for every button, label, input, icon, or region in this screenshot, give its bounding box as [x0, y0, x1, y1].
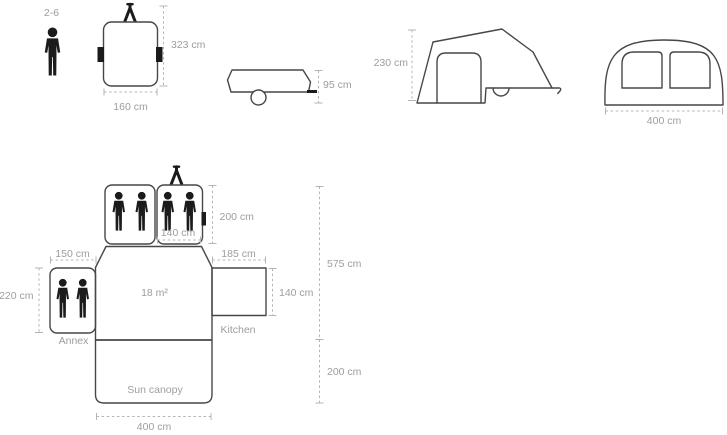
trailer-length-label: 323 cm	[171, 40, 205, 51]
annex-depth-label: 220 cm	[0, 291, 34, 302]
folded-body	[228, 70, 311, 92]
left-handle	[98, 47, 105, 62]
front-width-label: 400 cm	[647, 116, 681, 127]
person-icon	[135, 192, 148, 231]
person-icon	[161, 192, 174, 231]
person-icon	[45, 28, 61, 76]
dim-line-total-length	[316, 187, 324, 404]
person-icon	[183, 192, 196, 231]
canopy-depth-label: 200 cm	[327, 367, 361, 378]
trailer-body	[104, 22, 158, 86]
wheel-icon	[251, 90, 266, 105]
dim-line-trailer-width	[104, 89, 157, 96]
annex-width-label: 150 cm	[55, 249, 89, 260]
overall-width-label: 400 cm	[137, 422, 171, 433]
window	[670, 52, 710, 88]
window	[622, 52, 662, 88]
folded-height-label: 95 cm	[323, 80, 352, 91]
door	[437, 53, 481, 103]
bedroom-left	[105, 185, 155, 244]
person-icon	[112, 192, 125, 231]
tent-dimension-diagram: 2-6 323 cm 160 cm 95 cm 230 cm 400 cm 20…	[0, 0, 727, 435]
handle	[202, 212, 207, 226]
living-area-label: 18 m²	[141, 288, 168, 299]
wheel-icon	[493, 88, 509, 96]
dim-line-folded-height	[315, 71, 323, 104]
dim-line-overall-width	[97, 413, 212, 420]
kitchen-depth-label: 140 cm	[279, 288, 313, 299]
tow-hitch-icon	[171, 167, 181, 184]
tent-front-view	[605, 40, 723, 115]
capacity-label: 2-6	[44, 8, 59, 19]
person-icon	[56, 279, 69, 318]
bedroom-length-label: 200 cm	[220, 212, 254, 223]
trailer-width-label: 160 cm	[113, 102, 147, 113]
dim-line-tent-height	[408, 30, 416, 101]
kitchen-name-label: Kitchen	[220, 325, 255, 336]
tent-height-label: 230 cm	[374, 58, 408, 69]
annex-room	[50, 268, 96, 333]
canopy-name-label: Sun canopy	[127, 385, 182, 396]
kitchen-width-label: 185 cm	[221, 249, 255, 260]
bedroom-width-label: 140 cm	[161, 228, 195, 239]
tent-side-view	[408, 29, 561, 103]
dim-line-kitchen-depth	[269, 269, 277, 316]
kitchen-room	[212, 268, 266, 316]
trailer-folded-side-view	[228, 70, 323, 105]
person-icon	[76, 279, 89, 318]
dim-line-front-width	[606, 108, 723, 115]
dim-line-trailer-length	[160, 6, 168, 86]
diagram-canvas	[0, 0, 727, 435]
trailer-top-view	[98, 4, 168, 95]
right-handle	[156, 47, 163, 62]
total-length-label: 575 cm	[327, 259, 361, 270]
tow-hitch-icon	[125, 4, 135, 21]
tow-bar-icon	[552, 88, 561, 94]
dim-line-bedroom-length	[209, 186, 217, 244]
dim-line-annex-depth	[35, 268, 43, 333]
annex-name-label: Annex	[59, 336, 89, 347]
